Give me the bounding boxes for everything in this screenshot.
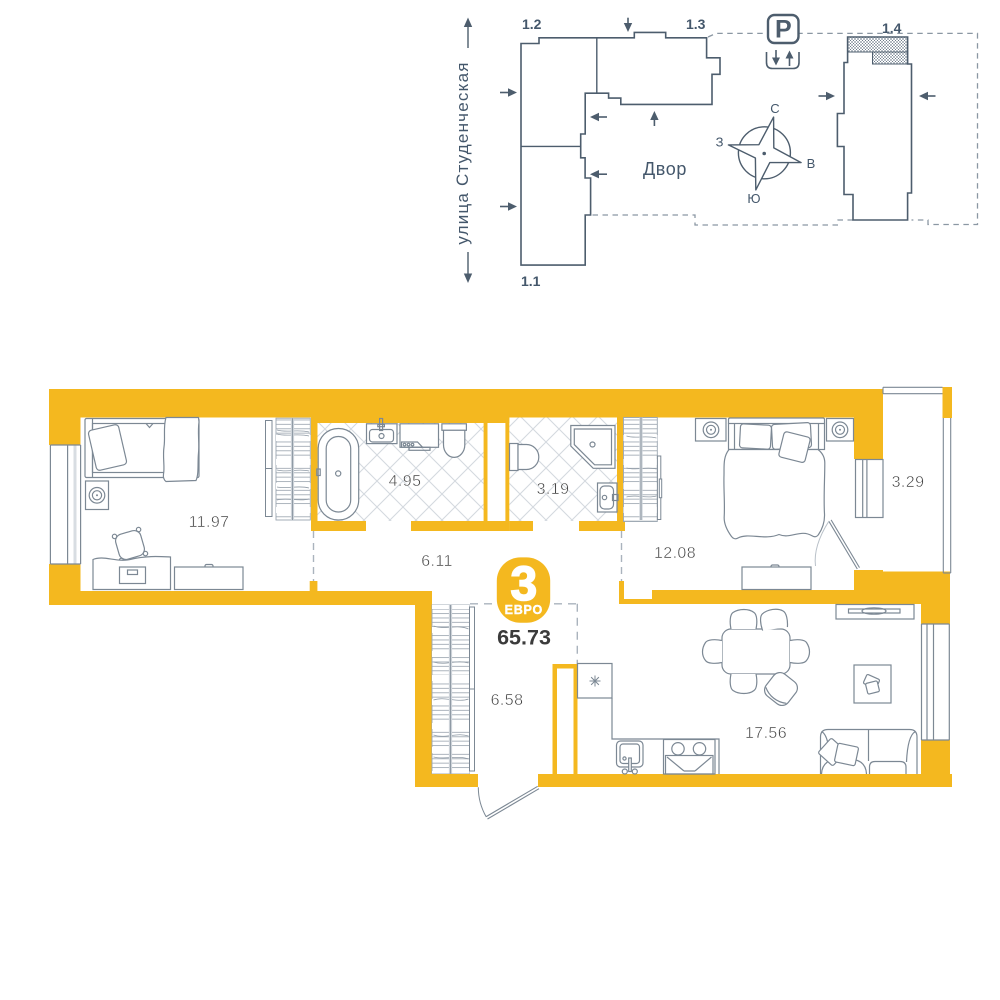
svg-text:3.19: 3.19 [537,481,570,498]
svg-text:ЕВРО: ЕВРО [505,603,543,617]
svg-text:6.11: 6.11 [421,553,453,570]
svg-text:1.2: 1.2 [522,16,542,32]
svg-text:Ю: Ю [747,191,760,206]
svg-text:P: P [775,16,792,44]
svg-text:1.3: 1.3 [686,16,706,32]
svg-text:65.73: 65.73 [497,626,551,650]
svg-text:В: В [807,156,816,171]
svg-text:3.29: 3.29 [892,474,925,491]
svg-text:11.97: 11.97 [189,514,230,531]
svg-text:12.08: 12.08 [654,545,696,562]
svg-text:С: С [770,101,779,116]
svg-text:улица Студенческая: улица Студенческая [453,61,472,244]
svg-text:1.1: 1.1 [521,273,541,289]
svg-text:З: З [716,135,724,150]
svg-text:17.56: 17.56 [745,725,787,742]
svg-text:6.58: 6.58 [491,692,524,709]
svg-text:4.95: 4.95 [389,473,422,490]
svg-text:Двор: Двор [643,159,687,179]
